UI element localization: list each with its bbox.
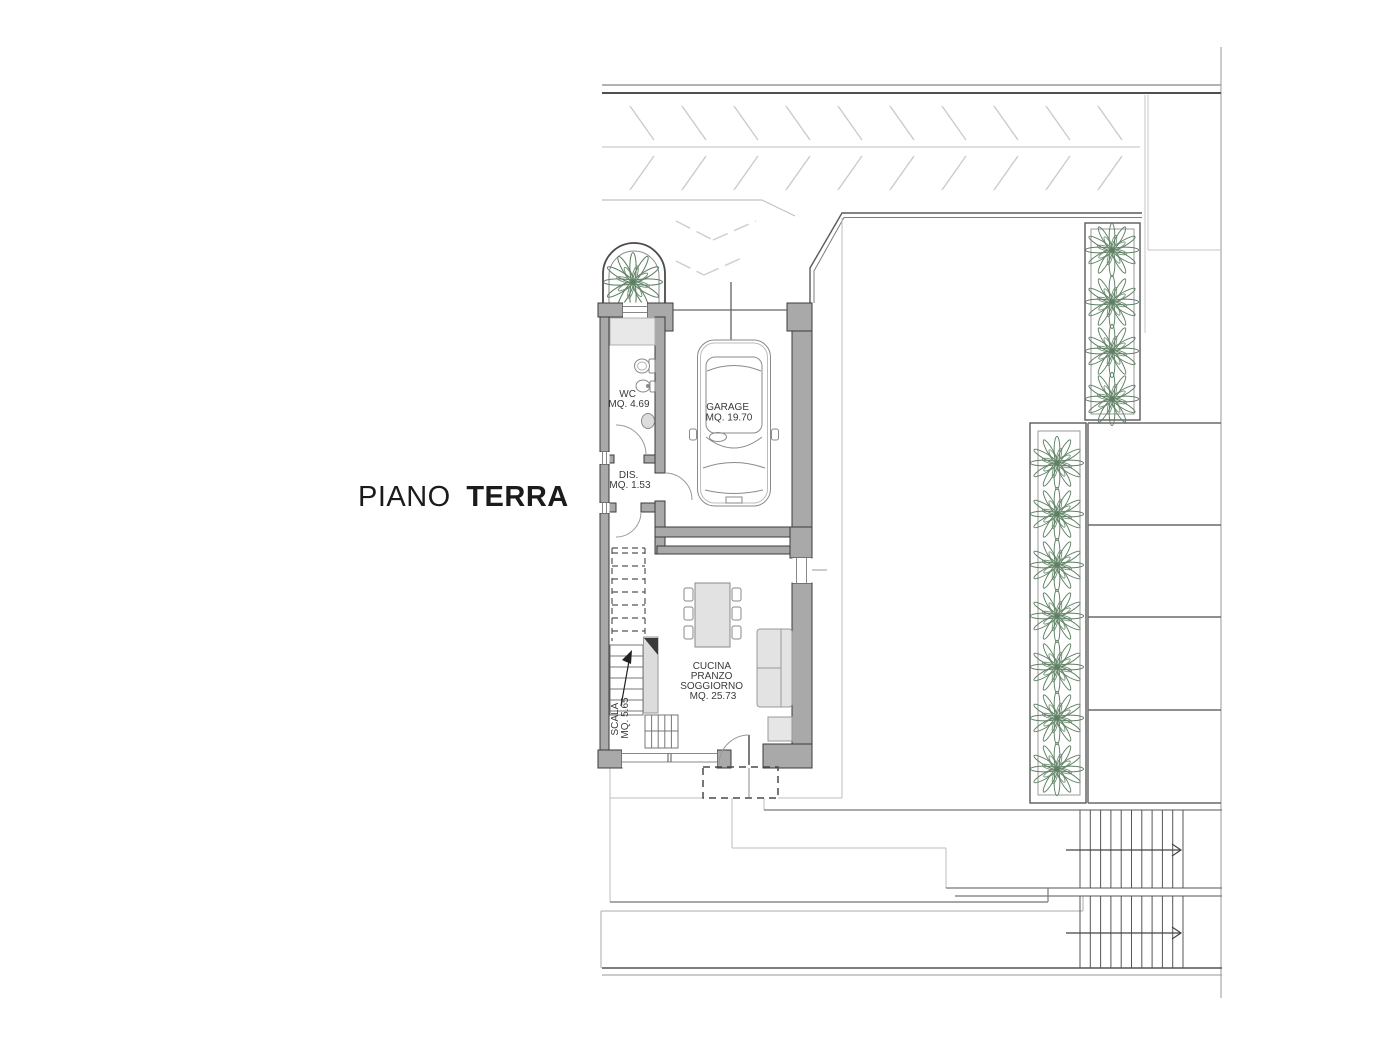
site-plan-drawing: WC MQ. 4.69 DIS. MQ. 1.53 GARAGE MQ. 19.… [0,0,1400,1049]
garage-name: GARAGE [706,402,749,413]
plant-icon [1085,223,1138,276]
door-swing-wc [616,425,646,455]
wall-dis-hall-a [609,503,616,512]
neighbor-terraces [1088,423,1221,803]
stair-upper-flight-dashed [612,548,645,641]
dining-table [695,583,730,647]
hatch-mark [890,106,914,140]
hatch-mark [630,106,654,140]
hatch-mark [786,156,810,190]
door-swing-dis-hall [616,512,641,537]
entrance-step-dashed [703,767,778,798]
shower-box [610,318,655,345]
hatch-mark [994,106,1018,140]
wall-left-3 [600,513,609,750]
dining-set [684,583,741,647]
cabinet [768,717,792,741]
title-emphasis: TERRA [466,481,568,513]
door-swing-dis-garage [665,473,692,500]
scala-room-label: SCALA MQ. 5.65 [610,697,631,739]
scala-area: MQ. 5.65 [620,697,631,739]
sofa [757,629,792,707]
hatch-mark [1098,156,1122,190]
stairs-direction-arrow-up [1066,844,1181,856]
wall-dis-hall-b [641,503,655,512]
plant-icon [1085,324,1138,377]
wall-left-2 [600,464,609,503]
road-edge [602,85,1221,93]
wall-living-top [657,546,792,554]
plant-icon [1085,275,1138,328]
garage-area: MQ. 19.70 [706,413,753,424]
wall-right-garage [792,331,812,527]
window-left-2 [600,503,610,513]
hatch-mark [1046,106,1070,140]
wc-area: MQ. 4.69 [608,399,650,410]
hatch-mark [838,156,862,190]
garage-door-pillar-right [787,303,812,331]
wall-wc-dis-b [644,455,655,463]
plant-icon [1085,372,1138,425]
plants-layer [604,223,1139,795]
wall-left-1 [600,317,609,452]
sink-icon [642,414,655,429]
hatch-mark [942,106,966,140]
stair-flight-lower [1080,896,1183,968]
hatch-mark [630,156,654,190]
wall-garage-bottom [655,527,812,537]
wall-corner-bottom-left [598,750,622,768]
courtyard-boundary [810,213,1142,303]
window-left-1 [600,452,610,464]
hatch-mark [682,156,706,190]
site-stairs [602,810,1222,975]
wall-wc-dis-a [609,455,614,463]
wall-right-junction [790,527,812,558]
hatch-mark [734,106,758,140]
wall-wc-garage [655,317,665,473]
wall-corner-bottom-right [763,744,812,768]
dis-area: MQ. 1.53 [609,480,651,491]
wc-fixtures [610,318,655,429]
hatch-mark [994,156,1018,190]
living-room-label: CUCINA PRANZO SOGGIORNO MQ. 25.73 [680,661,746,702]
wall-dis-garage [655,501,665,527]
toilet-icon [635,359,656,373]
driveway-markings [676,221,756,275]
hatch-mark [942,156,966,190]
hatch-mark [1098,106,1122,140]
window-living-right [793,558,828,583]
parking-area [602,95,1221,333]
hatch-mark [682,106,706,140]
window-living-bottom [622,750,717,768]
wall-top-left [598,303,623,317]
title-prefix: PIANO [358,481,451,513]
hatch-mark [838,106,862,140]
stairs-direction-arrow-down [1066,927,1181,939]
bidet-icon [636,380,655,392]
hatch-mark [1046,156,1070,190]
page-title: PIANO TERRA [358,481,569,513]
hatch-mark [890,156,914,190]
parking-hatch-marks [630,106,1122,190]
stair-flight-upper [1080,810,1183,888]
window-wc-top [623,303,647,318]
dis-room-label: DIS. MQ. 1.53 [609,470,651,491]
wall-right-living [792,583,812,744]
garage-room-label: GARAGE MQ. 19.70 [706,402,753,424]
hatch-mark [786,106,810,140]
living-area: MQ. 25.73 [690,691,737,702]
hatch-mark [734,156,758,190]
